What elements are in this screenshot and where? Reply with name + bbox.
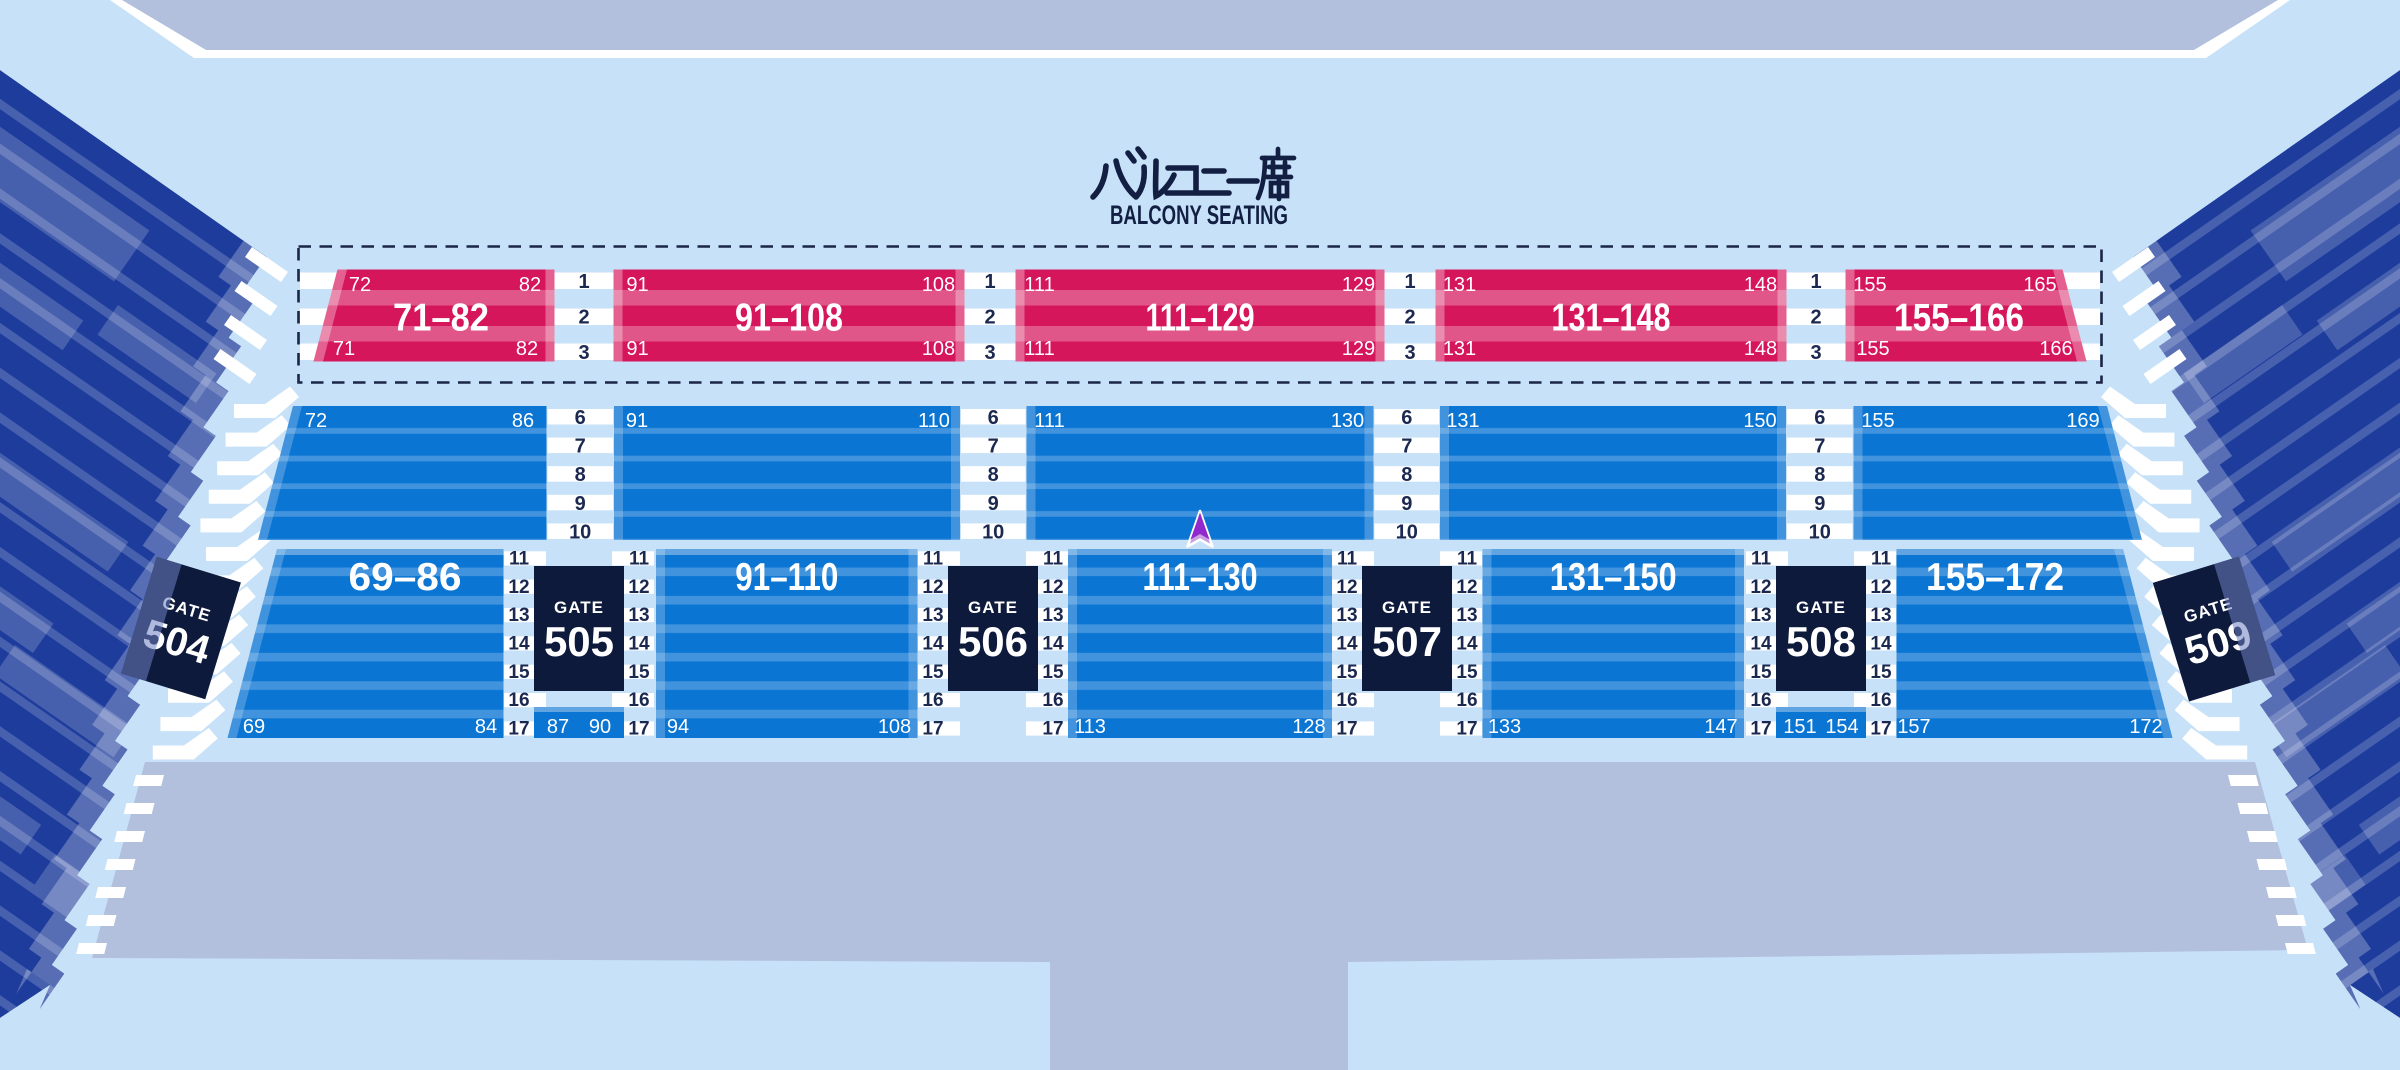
- svg-text:10: 10: [982, 521, 1004, 543]
- svg-text:GATE: GATE: [968, 598, 1018, 617]
- svg-text:GATE: GATE: [1382, 598, 1432, 617]
- svg-text:3: 3: [984, 342, 995, 364]
- svg-text:11: 11: [1751, 549, 1772, 570]
- svg-text:8: 8: [575, 464, 586, 486]
- svg-text:13: 13: [628, 605, 649, 626]
- svg-text:113: 113: [1074, 716, 1106, 738]
- svg-text:91: 91: [626, 274, 648, 296]
- svg-text:505: 505: [544, 618, 614, 665]
- svg-text:16: 16: [1042, 690, 1063, 711]
- svg-text:15: 15: [922, 662, 944, 683]
- svg-text:2: 2: [1404, 307, 1415, 329]
- svg-text:15: 15: [1870, 662, 1892, 683]
- svg-text:91–108: 91–108: [735, 297, 843, 340]
- svg-text:17: 17: [1042, 719, 1063, 740]
- svg-text:157: 157: [1897, 716, 1930, 738]
- svg-text:131: 131: [1443, 338, 1476, 360]
- svg-text:15: 15: [508, 662, 530, 683]
- svg-text:131: 131: [1443, 274, 1476, 296]
- svg-text:94: 94: [667, 716, 689, 738]
- svg-text:108: 108: [922, 338, 955, 360]
- svg-text:16: 16: [1750, 690, 1771, 711]
- svg-text:111: 111: [1024, 274, 1054, 296]
- svg-text:14: 14: [922, 634, 944, 655]
- svg-text:128: 128: [1292, 716, 1325, 738]
- svg-text:10: 10: [1809, 521, 1831, 543]
- svg-text:151: 151: [1783, 716, 1816, 738]
- svg-text:17: 17: [922, 719, 943, 740]
- svg-text:169: 169: [2066, 410, 2099, 432]
- svg-text:155: 155: [1853, 274, 1886, 296]
- svg-text:14: 14: [1870, 634, 1892, 655]
- svg-text:17: 17: [1456, 719, 1477, 740]
- svg-text:71–82: 71–82: [393, 297, 489, 340]
- svg-text:508: 508: [1786, 618, 1856, 665]
- svg-text:3: 3: [578, 342, 589, 364]
- svg-text:69–86: 69–86: [349, 556, 462, 599]
- svg-text:7: 7: [1401, 436, 1412, 458]
- svg-text:8: 8: [1401, 464, 1412, 486]
- svg-text:6: 6: [1401, 407, 1412, 429]
- svg-text:12: 12: [922, 577, 943, 598]
- svg-text:10: 10: [569, 521, 591, 543]
- svg-text:14: 14: [1456, 634, 1478, 655]
- svg-text:11: 11: [1871, 549, 1892, 570]
- svg-text:9: 9: [1814, 493, 1825, 515]
- svg-text:108: 108: [878, 716, 911, 738]
- svg-text:507: 507: [1372, 618, 1442, 665]
- svg-text:14: 14: [628, 634, 650, 655]
- svg-text:71: 71: [333, 338, 355, 360]
- svg-text:15: 15: [628, 662, 650, 683]
- svg-text:165: 165: [2023, 274, 2056, 296]
- svg-text:12: 12: [508, 577, 529, 598]
- svg-text:14: 14: [1042, 634, 1064, 655]
- svg-text:131: 131: [1446, 410, 1479, 432]
- svg-text:166: 166: [2039, 338, 2072, 360]
- svg-text:12: 12: [1456, 577, 1477, 598]
- svg-text:9: 9: [1401, 493, 1412, 515]
- svg-text:90: 90: [589, 716, 611, 738]
- svg-text:69: 69: [243, 716, 265, 738]
- svg-text:10: 10: [1396, 521, 1418, 543]
- svg-text:3: 3: [1404, 342, 1415, 364]
- svg-text:1: 1: [1404, 271, 1415, 293]
- svg-text:7: 7: [1814, 436, 1825, 458]
- svg-text:111–129: 111–129: [1146, 297, 1255, 340]
- svg-text:2: 2: [1810, 307, 1821, 329]
- svg-text:82: 82: [519, 274, 541, 296]
- svg-text:16: 16: [922, 690, 943, 711]
- svg-text:1: 1: [578, 271, 589, 293]
- svg-text:15: 15: [1456, 662, 1478, 683]
- svg-text:17: 17: [508, 719, 529, 740]
- svg-text:17: 17: [1870, 719, 1891, 740]
- svg-text:148: 148: [1744, 274, 1777, 296]
- svg-text:GATE: GATE: [1796, 598, 1846, 617]
- svg-text:13: 13: [1336, 605, 1357, 626]
- svg-text:16: 16: [1456, 690, 1477, 711]
- svg-text:9: 9: [988, 493, 999, 515]
- svg-text:1: 1: [984, 271, 995, 293]
- svg-text:7: 7: [575, 436, 586, 458]
- svg-text:155: 155: [1861, 410, 1894, 432]
- svg-text:1: 1: [1810, 271, 1821, 293]
- svg-text:11: 11: [509, 549, 530, 570]
- svg-text:9: 9: [575, 493, 586, 515]
- svg-text:111–130: 111–130: [1143, 556, 1258, 599]
- svg-text:111: 111: [1024, 338, 1054, 360]
- svg-text:17: 17: [1750, 719, 1771, 740]
- svg-text:11: 11: [1457, 549, 1478, 570]
- svg-text:8: 8: [988, 464, 999, 486]
- svg-text:14: 14: [508, 634, 530, 655]
- svg-text:13: 13: [922, 605, 943, 626]
- svg-text:6: 6: [575, 407, 586, 429]
- svg-text:13: 13: [1042, 605, 1063, 626]
- svg-text:150: 150: [1743, 410, 1776, 432]
- svg-text:16: 16: [508, 690, 529, 711]
- svg-text:2: 2: [578, 307, 589, 329]
- svg-text:12: 12: [628, 577, 649, 598]
- svg-text:108: 108: [922, 274, 955, 296]
- svg-text:14: 14: [1336, 634, 1358, 655]
- svg-text:72: 72: [305, 410, 327, 432]
- svg-text:72: 72: [349, 274, 371, 296]
- svg-text:16: 16: [1336, 690, 1357, 711]
- svg-text:15: 15: [1336, 662, 1358, 683]
- svg-text:172: 172: [2129, 716, 2162, 738]
- svg-text:GATE: GATE: [554, 598, 604, 617]
- svg-text:13: 13: [1456, 605, 1477, 626]
- svg-text:111: 111: [1034, 410, 1064, 432]
- svg-text:133: 133: [1488, 716, 1521, 738]
- svg-text:147: 147: [1704, 716, 1737, 738]
- svg-text:11: 11: [1337, 549, 1358, 570]
- svg-text:129: 129: [1342, 274, 1375, 296]
- svg-text:6: 6: [988, 407, 999, 429]
- svg-text:91–110: 91–110: [735, 556, 838, 599]
- svg-text:17: 17: [628, 719, 649, 740]
- svg-text:148: 148: [1744, 338, 1777, 360]
- svg-text:154: 154: [1825, 716, 1858, 738]
- svg-text:13: 13: [1750, 605, 1771, 626]
- svg-text:16: 16: [628, 690, 649, 711]
- svg-text:91: 91: [626, 338, 648, 360]
- svg-text:131–150: 131–150: [1550, 556, 1677, 599]
- svg-text:17: 17: [1336, 719, 1357, 740]
- svg-text:15: 15: [1042, 662, 1064, 683]
- svg-text:87: 87: [547, 716, 569, 738]
- svg-text:129: 129: [1342, 338, 1375, 360]
- svg-text:91: 91: [626, 410, 648, 432]
- svg-text:12: 12: [1336, 577, 1357, 598]
- svg-text:15: 15: [1750, 662, 1772, 683]
- svg-text:12: 12: [1042, 577, 1063, 598]
- svg-text:155–166: 155–166: [1894, 297, 2024, 340]
- svg-text:506: 506: [958, 618, 1028, 665]
- svg-text:155: 155: [1856, 338, 1889, 360]
- svg-text:3: 3: [1810, 342, 1821, 364]
- svg-text:84: 84: [475, 716, 497, 738]
- svg-text:130: 130: [1331, 410, 1364, 432]
- svg-text:6: 6: [1814, 407, 1825, 429]
- svg-text:11: 11: [1043, 549, 1064, 570]
- svg-text:13: 13: [508, 605, 529, 626]
- svg-text:86: 86: [512, 410, 534, 432]
- svg-text:14: 14: [1750, 634, 1772, 655]
- svg-text:82: 82: [516, 338, 538, 360]
- svg-text:BALCONY SEATING: BALCONY SEATING: [1110, 200, 1288, 230]
- svg-text:155–172: 155–172: [1926, 556, 2064, 599]
- svg-text:2: 2: [984, 307, 995, 329]
- svg-text:7: 7: [988, 436, 999, 458]
- svg-text:11: 11: [629, 549, 650, 570]
- svg-text:12: 12: [1870, 577, 1891, 598]
- svg-text:11: 11: [923, 549, 944, 570]
- svg-text:13: 13: [1870, 605, 1891, 626]
- svg-text:12: 12: [1750, 577, 1771, 598]
- svg-text:8: 8: [1814, 464, 1825, 486]
- svg-text:131–148: 131–148: [1552, 297, 1671, 340]
- svg-text:110: 110: [918, 410, 950, 432]
- svg-text:16: 16: [1870, 690, 1891, 711]
